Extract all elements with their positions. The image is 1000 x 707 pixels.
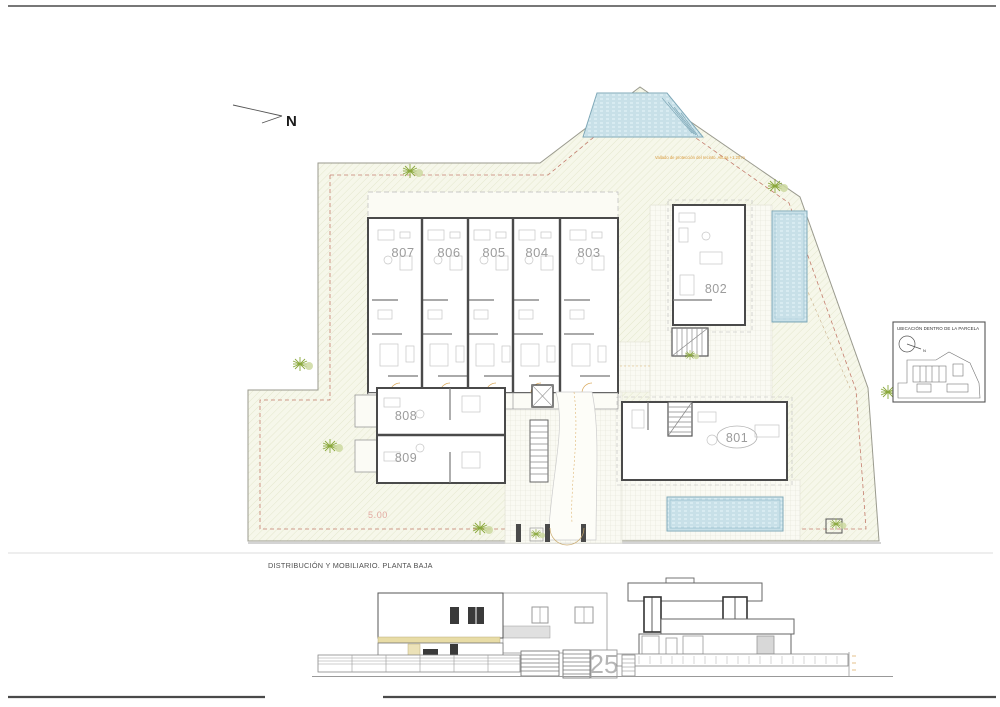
elevation-left: 25	[318, 593, 618, 679]
duplex-block: 808 809	[355, 388, 505, 483]
unit-label-805: 805	[482, 245, 505, 260]
cantilever-slab	[661, 619, 794, 634]
unit-label-803: 803	[577, 245, 600, 260]
unit-label-806: 806	[437, 245, 460, 260]
row-roof-overhang	[368, 192, 618, 218]
unit-label-809: 809	[395, 451, 417, 465]
drawing-sheet: N Vallado de protección del recinto. Alt…	[0, 0, 1000, 707]
fence-note: Vallado de protección del recinto. Altur…	[655, 155, 745, 160]
floor-plan-drawing: N Vallado de protección del recinto. Alt…	[0, 0, 1000, 707]
street-number: 25	[590, 649, 619, 679]
communal-pool	[583, 93, 703, 137]
north-label: N	[286, 113, 297, 130]
drawing-caption: DISTRIBUCIÓN Y MOBILIARIO. PLANTA BAJA	[268, 561, 433, 570]
legend-north-label: N	[923, 348, 926, 353]
pool-802	[772, 211, 807, 322]
unit-label-804: 804	[525, 245, 548, 260]
north-arrow-icon: N	[233, 105, 297, 130]
unit-label-807: 807	[391, 245, 414, 260]
central-stairs	[530, 420, 548, 482]
legend-title: UBICACIÓN DENTRO DE LA PARCELA	[897, 326, 979, 331]
slatted-gate	[521, 650, 590, 678]
villa-door	[666, 638, 677, 656]
street-fence	[318, 655, 520, 672]
unit-label-808: 808	[395, 409, 417, 423]
villa-front-wall	[617, 652, 856, 676]
tall-window	[644, 597, 661, 632]
villa-801-stairs	[668, 402, 692, 436]
balcony-band	[378, 637, 500, 643]
dimension-label: 5.00	[368, 510, 388, 520]
legend-box: UBICACIÓN DENTRO DE LA PARCELA N	[893, 322, 985, 402]
tree-icon	[293, 357, 313, 371]
site-plan: Vallado de protección del recinto. Altur…	[8, 87, 993, 553]
unit-label-802: 802	[705, 282, 727, 296]
townhouse-row: 807 806 805 804 803	[368, 218, 618, 409]
unit-label-801: 801	[726, 431, 748, 445]
pool-801	[667, 497, 783, 531]
